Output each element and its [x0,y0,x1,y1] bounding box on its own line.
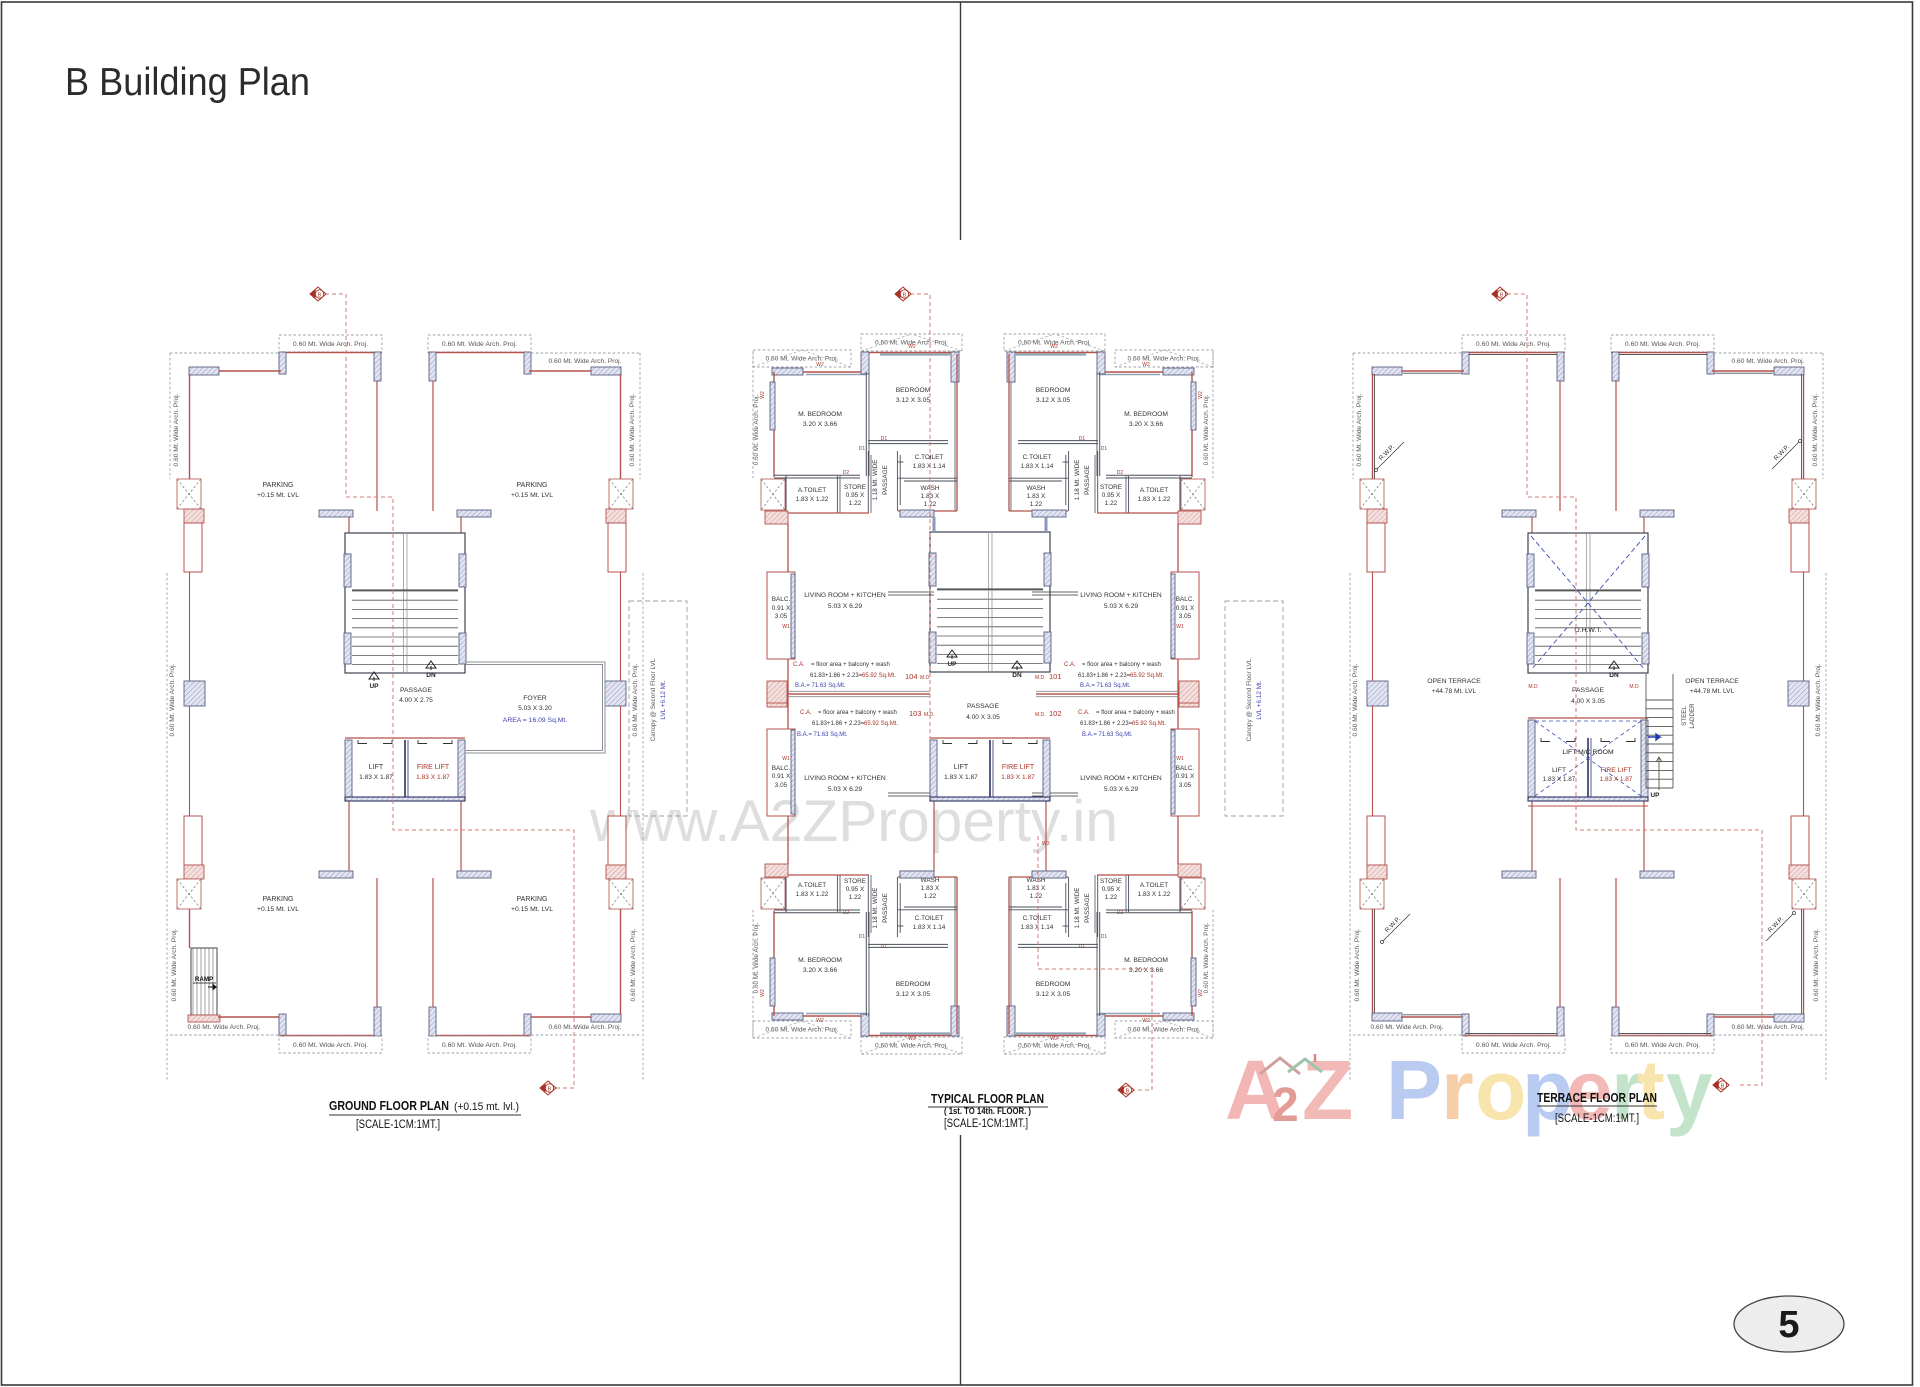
svg-text:B: B [548,1086,552,1092]
svg-text:W2: W2 [760,989,766,997]
svg-text:= floor area + balcony + wash: = floor area + balcony + wash [1096,710,1175,716]
svg-text:O.H.W.T.: O.H.W.T. [1574,627,1601,634]
svg-text:3.05: 3.05 [1179,782,1192,789]
svg-text:= floor area + balcony + wash: = floor area + balcony + wash [811,662,890,668]
svg-text:1.83 X 1.14: 1.83 X 1.14 [913,463,946,470]
svg-text:4.00 X 3.05: 4.00 X 3.05 [966,714,1000,721]
svg-text:STORE: STORE [844,484,866,491]
svg-text:LIVING ROOM + KITCHEN: LIVING ROOM + KITCHEN [804,775,886,782]
svg-text:3.05: 3.05 [1179,613,1192,620]
svg-text:t: t [1637,1043,1665,1137]
svg-text:DN: DN [426,672,436,679]
svg-text:1.83 X 1.22: 1.83 X 1.22 [796,891,829,898]
svg-text:BEDROOM: BEDROOM [896,981,931,988]
svg-text:+44.78 Mt. LVL: +44.78 Mt. LVL [1432,688,1477,695]
svg-text:PARKING: PARKING [517,896,548,903]
svg-text:+0.15 Mt. LVL: +0.15 Mt. LVL [511,492,553,499]
svg-text:B Building Plan: B Building Plan [65,61,310,104]
svg-text:0.60 Mt. Wide Arch. Proj.: 0.60 Mt. Wide Arch. Proj. [442,341,517,348]
svg-text:W2: W2 [908,1036,916,1042]
svg-text:65.92 Sq.Mt.: 65.92 Sq.Mt. [1132,721,1166,727]
svg-text:TYPICAL FLOOR PLAN: TYPICAL FLOOR PLAN [931,1092,1044,1106]
svg-text:M. BEDROOM: M. BEDROOM [1124,957,1168,964]
svg-text:LIVING ROOM + KITCHEN: LIVING ROOM + KITCHEN [804,592,886,599]
svg-text:5.03 X 6.29: 5.03 X 6.29 [1104,786,1138,793]
svg-text:B.A.= 71.63 Sq.Mt.: B.A.= 71.63 Sq.Mt. [797,732,848,738]
svg-text:RAMP: RAMP [195,976,213,983]
svg-text:(+0.15 mt. lvl.): (+0.15 mt. lvl.) [454,1101,519,1113]
svg-text:0.60 Mt. Wide Arch. Proj.: 0.60 Mt. Wide Arch. Proj. [630,928,637,1001]
svg-text:B: B [318,292,322,298]
svg-text:M. BEDROOM: M. BEDROOM [798,411,842,418]
svg-text:B: B [1126,1088,1130,1094]
svg-text:C.TOILET: C.TOILET [1023,915,1052,922]
svg-text:LIVING ROOM + KITCHEN: LIVING ROOM + KITCHEN [1080,592,1162,599]
svg-text:OPEN TERRACE: OPEN TERRACE [1685,678,1739,685]
svg-text:C.TOILET: C.TOILET [915,915,944,922]
svg-text:W3: W3 [1042,841,1050,847]
svg-text:M.D.: M.D. [924,712,935,718]
svg-text:104: 104 [905,672,918,681]
svg-text:65.92 Sq.Mt.: 65.92 Sq.Mt. [1130,673,1164,679]
svg-text:D2: D2 [1117,910,1124,916]
svg-text:FIRE LIFT: FIRE LIFT [417,764,450,771]
svg-text:STEEL: STEEL [1681,706,1688,726]
svg-text:BALC.: BALC. [1176,596,1195,603]
svg-text:W2: W2 [1050,344,1058,350]
svg-text:103: 103 [909,709,922,718]
svg-text:LIFT: LIFT [369,764,384,771]
svg-text:FOYER: FOYER [523,695,547,702]
svg-text:UP: UP [1651,792,1661,799]
svg-text:Canopy @ Second Floor LVL: Canopy @ Second Floor LVL [650,658,657,741]
svg-text:1.83 X: 1.83 X [1027,885,1046,892]
svg-text:Z: Z [1302,1043,1353,1137]
svg-text:0.60 Mt. Wide Arch. Proj.: 0.60 Mt. Wide Arch. Proj. [1018,1043,1091,1050]
svg-text:DN: DN [1012,672,1022,679]
svg-text:BALC.: BALC. [772,765,791,772]
svg-text:1.83 X 1.87: 1.83 X 1.87 [416,774,450,781]
svg-text:D1: D1 [1101,934,1108,940]
svg-text:0.60 Mt. Wide Arch. Proj.: 0.60 Mt. Wide Arch. Proj. [1354,928,1361,1001]
svg-text:0.60 Mt. Wide Arch. Proj.: 0.60 Mt. Wide Arch. Proj. [293,341,368,348]
svg-text:A.TOILET: A.TOILET [1140,882,1168,889]
svg-text:M.D.: M.D. [1035,675,1046,681]
svg-text:D1: D1 [881,436,888,442]
svg-text:1.83 X 1.87: 1.83 X 1.87 [944,774,978,781]
svg-text:W1: W1 [782,756,790,762]
svg-text:STORE: STORE [844,878,866,885]
svg-text:1.22: 1.22 [849,500,862,507]
svg-text:0.60 Mt. Wide Arch. Proj.: 0.60 Mt. Wide Arch. Proj. [293,1042,368,1049]
svg-text:0.60 Mt. Wide Arch. Proj.: 0.60 Mt. Wide Arch. Proj. [173,393,180,466]
svg-text:FIRE LIFT: FIRE LIFT [1002,764,1035,771]
svg-text:W1: W1 [1176,624,1184,630]
svg-text:0.60 Mt. Wide Arch. Proj.: 0.60 Mt. Wide Arch. Proj. [1371,1024,1444,1031]
svg-text:1.83 X 1.87: 1.83 X 1.87 [1543,776,1576,783]
svg-text:0.60 Mt. Wide Arch. Proj.: 0.60 Mt. Wide Arch. Proj. [1356,393,1363,466]
svg-text:LIFT: LIFT [954,764,969,771]
svg-text:AREA = 16.09 Sq.Mt.: AREA = 16.09 Sq.Mt. [503,717,568,724]
svg-text:1.83 X 1.14: 1.83 X 1.14 [1021,924,1054,931]
svg-text:B: B [903,292,907,298]
svg-text:0.60 Mt. Wide Arch. Proj.: 0.60 Mt. Wide Arch. Proj. [1813,928,1820,1001]
svg-text:D2: D2 [843,470,850,476]
svg-text:W2: W2 [816,362,824,368]
svg-text:1.83 X 1.22: 1.83 X 1.22 [1138,496,1171,503]
svg-text:D2: D2 [1117,470,1124,476]
svg-text:M.D.: M.D. [1035,712,1046,718]
svg-text:0.95 X: 0.95 X [1102,492,1121,499]
svg-text:0.91 X: 0.91 X [1176,773,1195,780]
svg-text:0.60 Mt. Wide Arch. Proj.: 0.60 Mt. Wide Arch. Proj. [442,1042,517,1049]
svg-text:61.83+1.86 + 2.23=: 61.83+1.86 + 2.23= [1078,673,1131,679]
svg-text:FIRE LIFT: FIRE LIFT [1600,767,1631,774]
svg-text:65.92 Sq.Mt.: 65.92 Sq.Mt. [862,673,896,679]
svg-text:BEDROOM: BEDROOM [1036,387,1071,394]
svg-text:2: 2 [1272,1079,1299,1132]
svg-text:61.83+1.86 + 2.23=: 61.83+1.86 + 2.23= [812,721,865,727]
svg-text:( 1st. TO 14th. FLOOR. ): ( 1st. TO 14th. FLOOR. ) [944,1106,1031,1117]
svg-text:1.22: 1.22 [849,894,862,901]
svg-text:r: r [1441,1043,1474,1137]
svg-text:5.03 X 6.29: 5.03 X 6.29 [1104,603,1138,610]
svg-text:W2: W2 [816,1018,824,1024]
svg-text:D1: D1 [859,934,866,940]
svg-text:WASH: WASH [1027,485,1046,492]
svg-text:W2: W2 [1142,362,1150,368]
svg-text:B.A.= 71.63 Sq.Mt.: B.A.= 71.63 Sq.Mt. [1082,732,1133,738]
svg-text:LIFT: LIFT [1552,767,1566,774]
svg-text:STORE: STORE [1100,878,1122,885]
svg-text:W2: W2 [1142,1018,1150,1024]
svg-text:M. BEDROOM: M. BEDROOM [798,957,842,964]
svg-text:1.22: 1.22 [1030,893,1043,900]
svg-text:PASSAGE: PASSAGE [967,703,999,710]
svg-text:C.TOILET: C.TOILET [915,454,944,461]
svg-text:0.60 Mt. Wide Arch. Proj.: 0.60 Mt. Wide Arch. Proj. [1625,1042,1700,1049]
svg-text:[SCALE-1CM:1MT.]: [SCALE-1CM:1MT.] [1555,1113,1639,1125]
svg-text:+44.78 Mt. LVL: +44.78 Mt. LVL [1690,688,1735,695]
svg-text:0.95 X: 0.95 X [1102,886,1121,893]
svg-text:C.A.: C.A. [800,710,812,716]
svg-text:0.60 Mt. Wide Arch. Proj.: 0.60 Mt. Wide Arch. Proj. [875,1043,948,1050]
svg-text:1.18 Mt. WIDE: 1.18 Mt. WIDE [872,460,879,501]
svg-text:3.20 X 3.66: 3.20 X 3.66 [1129,421,1163,428]
svg-text:BALC.: BALC. [772,596,791,603]
svg-text:4.00 X 2.75: 4.00 X 2.75 [399,697,433,704]
svg-text:PASSAGE: PASSAGE [882,465,889,495]
svg-text:D1: D1 [1079,944,1086,950]
svg-text:M.D: M.D [1528,684,1538,690]
svg-text:y: y [1666,1043,1713,1137]
svg-text:1.83 X 1.87: 1.83 X 1.87 [1001,774,1035,781]
svg-text:P: P [1386,1043,1442,1137]
svg-text:1.83 X 1.22: 1.83 X 1.22 [796,496,829,503]
svg-text:UP: UP [369,683,379,690]
svg-text:0.95 X: 0.95 X [846,886,865,893]
svg-text:3.05: 3.05 [775,782,788,789]
svg-text:o: o [1475,1043,1526,1137]
svg-text:5.03 X 6.29: 5.03 X 6.29 [828,603,862,610]
svg-text:3.12 X 3.05: 3.12 X 3.05 [896,991,930,998]
svg-text:0.60 Mt. Wide Arch. Proj.: 0.60 Mt. Wide Arch. Proj. [753,394,760,465]
svg-text:PARKING: PARKING [263,482,294,489]
svg-text:5.03 X 3.20: 5.03 X 3.20 [518,705,552,712]
svg-text:LIFT M/C ROOM: LIFT M/C ROOM [1562,749,1614,756]
svg-text:1.22: 1.22 [1105,500,1118,507]
svg-text:GROUND FLOOR PLAN: GROUND FLOOR PLAN [329,1099,449,1113]
svg-text:5: 5 [1778,1304,1799,1346]
svg-text:BALC.: BALC. [1176,765,1195,772]
svg-text:= floor area + balcony + wash: = floor area + balcony + wash [1082,662,1161,668]
svg-text:0.60 Mt. Wide Arch. Proj.: 0.60 Mt. Wide Arch. Proj. [1203,922,1210,993]
svg-text:1.83 X 1.14: 1.83 X 1.14 [1021,463,1054,470]
svg-text:0.95 X: 0.95 X [846,492,865,499]
svg-text:M. BEDROOM: M. BEDROOM [1124,411,1168,418]
svg-text:B: B [1721,1083,1725,1089]
svg-text:PASSAGE: PASSAGE [400,687,432,694]
svg-text:PARKING: PARKING [263,896,294,903]
svg-text:Canopy @ Second Floor LVL: Canopy @ Second Floor LVL [1246,658,1253,741]
svg-text:1.18 Mt. WIDE: 1.18 Mt. WIDE [1074,460,1081,501]
svg-text:3.20 X 3.66: 3.20 X 3.66 [1129,967,1163,974]
svg-text:1.83 X 1.22: 1.83 X 1.22 [1138,891,1171,898]
svg-text:1.22: 1.22 [924,893,937,900]
svg-text:0.60 Mt. Wide Arch. Proj.: 0.60 Mt. Wide Arch. Proj. [188,1024,261,1031]
svg-text:1.22: 1.22 [1030,501,1043,508]
svg-text:W1: W1 [1176,756,1184,762]
svg-text:0.91 X: 0.91 X [772,605,791,612]
svg-text:W1: W1 [782,624,790,630]
svg-text:A.TOILET: A.TOILET [1140,487,1168,494]
svg-text:BEDROOM: BEDROOM [1036,981,1071,988]
svg-text:W2: W2 [1050,1036,1058,1042]
svg-text:0.60 Mt. Wide Arch. Proj.: 0.60 Mt. Wide Arch. Proj. [1732,358,1805,365]
svg-text:1.83 X 1.87: 1.83 X 1.87 [359,774,393,781]
svg-text:0.60 Mt. Wide Arch. Proj.: 0.60 Mt. Wide Arch. Proj. [1352,663,1359,736]
svg-text:3.12 X 3.05: 3.12 X 3.05 [1036,991,1070,998]
svg-text:+0.15 Mt. LVL: +0.15 Mt. LVL [511,906,553,913]
svg-text:UP: UP [947,661,957,668]
svg-text:5.03 X 6.29: 5.03 X 6.29 [828,786,862,793]
svg-text:0.60 Mt. Wide Arch. Proj.: 0.60 Mt. Wide Arch. Proj. [629,393,636,466]
svg-text:0.60 Mt. Wide Arch. Proj.: 0.60 Mt. Wide Arch. Proj. [169,663,176,736]
svg-text:0.60 Mt. Wide Arch. Proj.: 0.60 Mt. Wide Arch. Proj. [1203,394,1210,465]
svg-text:1.83 X: 1.83 X [1027,493,1046,500]
svg-text:OPEN TERRACE: OPEN TERRACE [1427,678,1481,685]
svg-text:A.TOILET: A.TOILET [798,487,826,494]
svg-text:B.A.= 71.63 Sq.Mt.: B.A.= 71.63 Sq.Mt. [795,683,846,689]
svg-text:M.D.: M.D. [920,675,931,681]
svg-text:0.91 X: 0.91 X [772,773,791,780]
svg-text:0.60 Mt. Wide Arch. Proj.: 0.60 Mt. Wide Arch. Proj. [1732,1024,1805,1031]
svg-text:TERRACE FLOOR PLAN: TERRACE FLOOR PLAN [1537,1091,1657,1105]
svg-text:BEDROOM: BEDROOM [896,387,931,394]
svg-text:A.TOILET: A.TOILET [798,882,826,889]
svg-text:B: B [1500,292,1504,298]
svg-text:0.60 Mt. Wide Arch. Proj.: 0.60 Mt. Wide Arch. Proj. [753,922,760,993]
svg-text:0.60 Mt. Wide Arch. Proj.: 0.60 Mt. Wide Arch. Proj. [549,1024,622,1031]
svg-text:PASSAGE: PASSAGE [1572,687,1604,694]
svg-text:65.92 Sq.Mt.: 65.92 Sq.Mt. [864,721,898,727]
svg-text:LADDER: LADDER [1689,703,1696,729]
svg-text:DN: DN [1609,672,1619,679]
svg-text:+0.15 Mt. LVL: +0.15 Mt. LVL [257,492,299,499]
svg-text:0.60 Mt. Wide Arch. Proj.: 0.60 Mt. Wide Arch. Proj. [1476,1042,1551,1049]
svg-text:LVL +6.12 Mt.: LVL +6.12 Mt. [1256,680,1263,719]
svg-text:= floor area + balcony + wash: = floor area + balcony + wash [818,710,897,716]
svg-text:1.83 X 1.87: 1.83 X 1.87 [1600,776,1633,783]
svg-text:C.A.: C.A. [793,662,805,668]
svg-text:LIVING ROOM + KITCHEN: LIVING ROOM + KITCHEN [1080,775,1162,782]
svg-text:0.60 Mt. Wide Arch. Proj.: 0.60 Mt. Wide Arch. Proj. [1812,393,1819,466]
svg-text:61.83+1.86 + 2.23=: 61.83+1.86 + 2.23= [810,673,863,679]
svg-text:1.18 Mt. WIDE: 1.18 Mt. WIDE [872,888,879,929]
svg-text:[SCALE-1CM:1MT.]: [SCALE-1CM:1MT.] [944,1118,1028,1130]
svg-text:D1: D1 [1079,436,1086,442]
svg-text:PARKING: PARKING [517,482,548,489]
svg-text:3.20 X 3.66: 3.20 X 3.66 [803,967,837,974]
svg-text:D1: D1 [1101,446,1108,452]
svg-text:61.83+1.86 + 2.23=: 61.83+1.86 + 2.23= [1080,721,1133,727]
svg-text:M.D: M.D [1629,684,1639,690]
svg-text:1.18 Mt. WIDE: 1.18 Mt. WIDE [1074,888,1081,929]
svg-text:1.22: 1.22 [1105,894,1118,901]
svg-text:0.60 Mt. Wide Arch. Proj.: 0.60 Mt. Wide Arch. Proj. [632,663,639,736]
svg-text:3.20 X 3.66: 3.20 X 3.66 [803,421,837,428]
svg-text:D1: D1 [859,446,866,452]
svg-text:PASSAGE: PASSAGE [1084,465,1091,495]
svg-text:STORE: STORE [1100,484,1122,491]
svg-text:1.83 X: 1.83 X [921,885,940,892]
svg-text:0.60 Mt. Wide Arch. Proj.: 0.60 Mt. Wide Arch. Proj. [549,358,622,365]
svg-text:102: 102 [1049,709,1062,718]
svg-text:1.83 X 1.14: 1.83 X 1.14 [913,924,946,931]
svg-text:0.60 Mt. Wide Arch. Proj.: 0.60 Mt. Wide Arch. Proj. [171,928,178,1001]
svg-text:C.TOILET: C.TOILET [1023,454,1052,461]
svg-text:C.A.: C.A. [1064,662,1076,668]
svg-text:D1: D1 [881,944,888,950]
svg-text:C.A.: C.A. [1078,710,1090,716]
svg-text:0.91 X: 0.91 X [1176,605,1195,612]
svg-text:+0.15 Mt. LVL: +0.15 Mt. LVL [257,906,299,913]
svg-text:3.12 X 3.05: 3.12 X 3.05 [1036,397,1070,404]
svg-text:[SCALE-1CM:1MT.]: [SCALE-1CM:1MT.] [356,1119,440,1131]
svg-text:D2: D2 [843,910,850,916]
svg-text:PASSAGE: PASSAGE [882,893,889,923]
svg-text:3.12 X 3.05: 3.12 X 3.05 [896,397,930,404]
svg-text:B.A.= 71.63 Sq.Mt.: B.A.= 71.63 Sq.Mt. [1080,683,1131,689]
svg-text:0.60 Mt. Wide Arch. Proj.: 0.60 Mt. Wide Arch. Proj. [1815,663,1822,736]
svg-text:W2: W2 [908,344,916,350]
svg-text:101: 101 [1049,672,1062,681]
svg-text:LVL +6.12 Mt.: LVL +6.12 Mt. [660,680,667,719]
svg-text:0.60 Mt. Wide Arch. Proj.: 0.60 Mt. Wide Arch. Proj. [1476,341,1551,348]
svg-text:3.05: 3.05 [775,613,788,620]
svg-text:W2: W2 [760,391,766,399]
svg-text:0.60 Mt. Wide Arch. Proj.: 0.60 Mt. Wide Arch. Proj. [1625,341,1700,348]
svg-text:PASSAGE: PASSAGE [1084,893,1091,923]
